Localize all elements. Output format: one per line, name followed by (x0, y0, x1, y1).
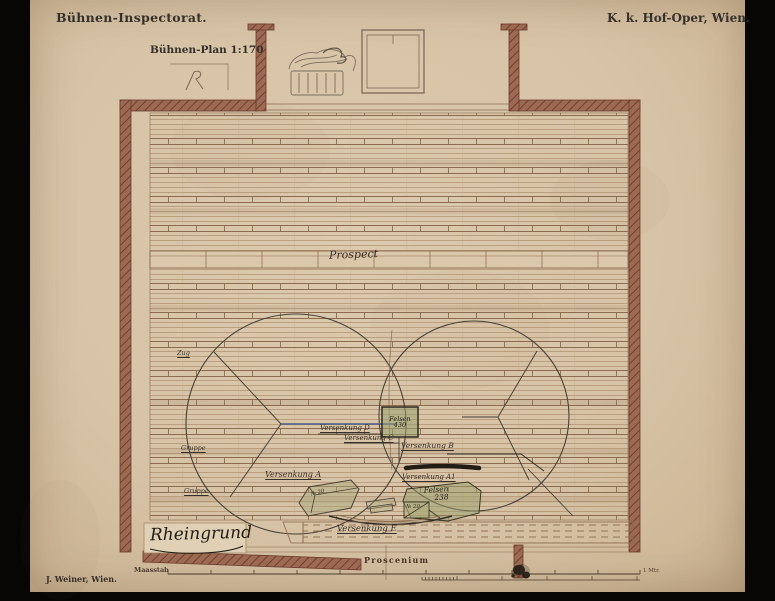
plan-title: Bühnen-Plan 1:170 (150, 45, 264, 56)
felsen-upper-label: Felsen 430 (382, 407, 418, 437)
printer-credit: J. Weiner, Wien. (46, 575, 117, 583)
heavy-ink-stroke (406, 466, 479, 468)
pencil-sketch-basket (289, 48, 355, 95)
versenkung-b-label: Versenkung B (401, 442, 454, 450)
side-note-3: Gruppe (184, 488, 209, 495)
rear-opening-lines (266, 104, 509, 110)
versenkung-d-label: Versenkung D (320, 425, 370, 432)
scale-end-label: 1 Mtr. (643, 569, 660, 575)
pencil-mark-near-title (170, 64, 228, 90)
scale-bars (168, 570, 640, 580)
scale-label: Maasstab (134, 567, 169, 574)
institution-title: K. k. Hof-Oper, Wien. (607, 12, 750, 24)
versenkung-a1-label: Versenkung A1 (402, 474, 456, 481)
side-note-2: Gruppe (181, 445, 206, 452)
office-title: Bühnen-Inspectorat. (56, 12, 207, 25)
stage-plan-drawing (0, 0, 775, 601)
backdrop-label: Prospect (329, 248, 378, 261)
piece-number-box: № 20 (406, 505, 420, 511)
scene-name: Rheingrund (150, 525, 252, 545)
prospekt-band (150, 251, 628, 268)
versenkung-e-band (283, 522, 633, 543)
pencil-sketch-platform (362, 30, 424, 93)
felsen-lower-number: 238 (434, 492, 449, 502)
versenkung-e-label: Versenkung E (337, 525, 397, 534)
proscenium-label: Proscenium (364, 556, 429, 564)
photo-background: Bühnen-Inspectorat. K. k. Hof-Oper, Wien… (0, 0, 775, 601)
versenkung-a-label: Versenkung A (265, 471, 321, 479)
side-note-1: Zug (177, 350, 190, 357)
felsen-lower-label: Felsen 238 (424, 485, 450, 502)
felsen-upper-number: 430 (394, 422, 406, 429)
